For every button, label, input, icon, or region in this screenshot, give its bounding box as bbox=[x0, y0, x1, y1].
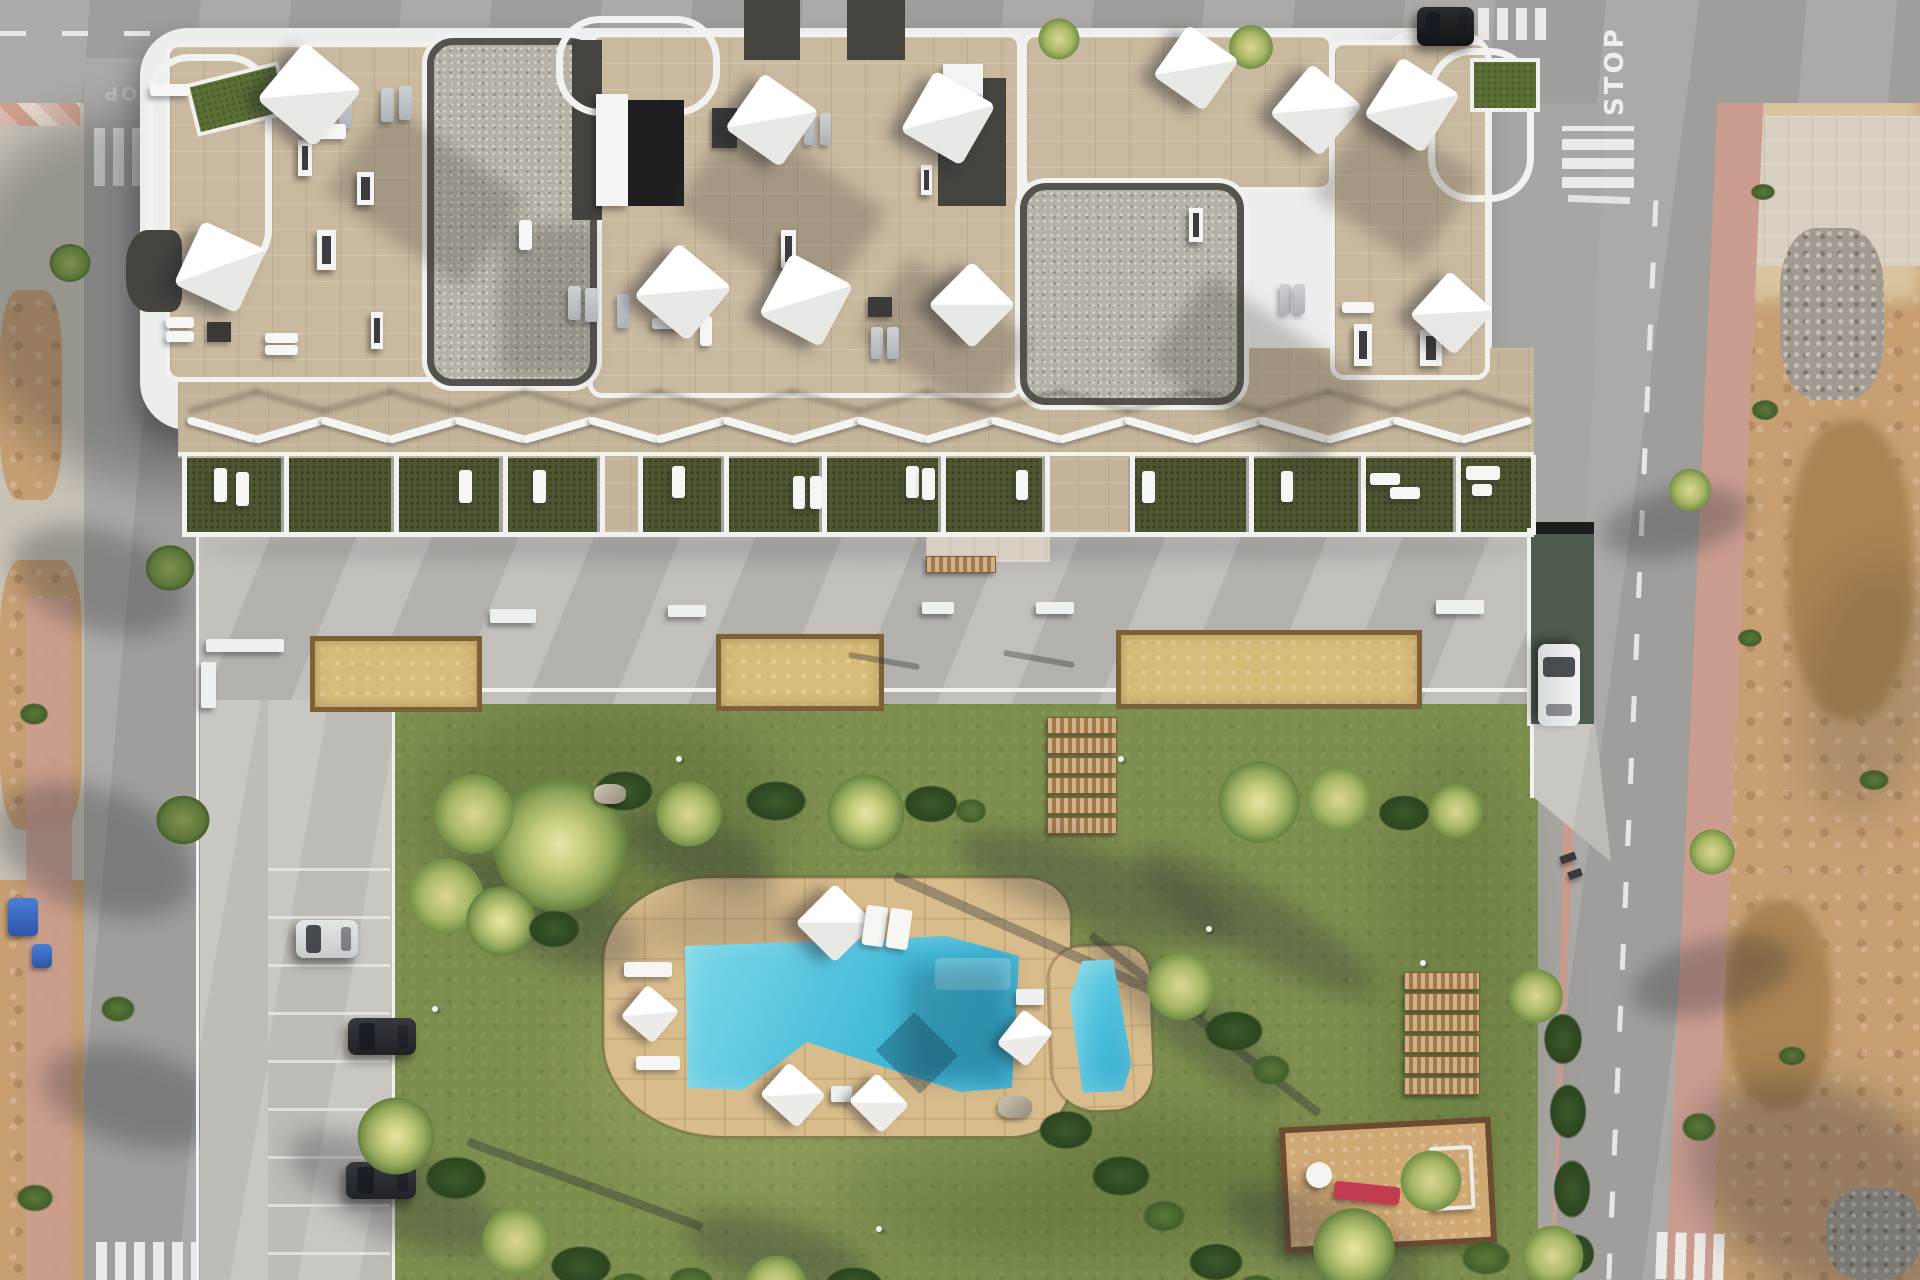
wood-bench bbox=[1404, 972, 1480, 990]
roof-palm bbox=[1030, 10, 1088, 68]
roof-lounger bbox=[265, 345, 298, 355]
weed bbox=[1745, 180, 1781, 204]
roof-lounger bbox=[265, 333, 298, 343]
street-tree bbox=[1660, 460, 1720, 520]
parking-line bbox=[268, 1252, 390, 1255]
playground-parasol bbox=[1306, 1162, 1332, 1188]
balcony-box bbox=[847, 0, 905, 60]
plaza-bench bbox=[206, 639, 284, 652]
parking-line bbox=[268, 964, 390, 967]
crosswalk-bottomright bbox=[1655, 1232, 1729, 1280]
street-tree bbox=[1680, 820, 1744, 884]
terrace-path bbox=[1048, 458, 1128, 534]
garden-bollard bbox=[432, 1006, 438, 1012]
terrace-lounger bbox=[672, 466, 685, 498]
weed bbox=[1772, 1042, 1812, 1070]
garden-step bbox=[1047, 797, 1117, 814]
garden-step bbox=[1047, 717, 1117, 734]
terrace-lounger bbox=[236, 472, 249, 506]
parking-line bbox=[268, 868, 390, 871]
parking-line bbox=[268, 1060, 390, 1063]
wood-bench bbox=[1404, 1077, 1480, 1095]
garden-bollard bbox=[876, 1226, 882, 1232]
garden-step bbox=[1047, 757, 1117, 774]
roof-lounger bbox=[399, 86, 412, 120]
trash-bin bbox=[8, 898, 38, 936]
garden-bollard bbox=[1420, 960, 1426, 966]
palm-tree bbox=[733, 1243, 819, 1280]
parked-car bbox=[296, 920, 358, 958]
terrace-lounger bbox=[906, 466, 919, 498]
roof-lounger bbox=[617, 294, 630, 328]
terrace-garden bbox=[397, 458, 499, 534]
terrace-wall bbox=[503, 455, 508, 535]
terrace-wall bbox=[284, 455, 289, 535]
crosswalk-right-road bbox=[1562, 126, 1634, 188]
terrace-wall bbox=[600, 455, 605, 535]
garden-step bbox=[1047, 777, 1117, 794]
roof-shaft bbox=[628, 100, 684, 206]
roof-lounger bbox=[568, 286, 581, 320]
roof-chimney bbox=[1189, 208, 1203, 242]
palm-tree bbox=[1510, 1213, 1596, 1280]
garden-bollard bbox=[676, 756, 682, 762]
roof-chimney bbox=[371, 312, 383, 349]
plaza-bench bbox=[1036, 602, 1074, 614]
terrace-wall bbox=[1249, 455, 1254, 535]
plaza-curb bbox=[196, 534, 199, 1280]
terrace-beam bbox=[178, 452, 1534, 456]
weed bbox=[1852, 765, 1896, 795]
roof-chimney bbox=[357, 172, 374, 205]
roof-lounger bbox=[871, 327, 883, 359]
terrace-wall bbox=[638, 455, 643, 535]
roof-lounger bbox=[381, 88, 394, 122]
crosswalk-topright bbox=[1478, 8, 1552, 40]
roof-lounger bbox=[519, 220, 532, 250]
terrace-garden bbox=[505, 458, 597, 534]
roof-lounger bbox=[1294, 284, 1305, 314]
bush bbox=[1133, 1193, 1195, 1239]
weed bbox=[1732, 625, 1768, 651]
weed bbox=[1745, 395, 1785, 425]
roof-lounger bbox=[150, 84, 190, 96]
rock bbox=[594, 784, 626, 804]
rock bbox=[998, 1096, 1032, 1118]
garden-step bbox=[1047, 737, 1117, 754]
plaza-step-wood bbox=[926, 556, 996, 573]
terrace-lounger bbox=[533, 470, 546, 503]
street-tree bbox=[148, 788, 218, 852]
trash-bin bbox=[32, 944, 52, 968]
roof-chimney bbox=[921, 165, 932, 195]
bush bbox=[518, 903, 590, 955]
parking-line bbox=[268, 1012, 390, 1015]
roof-lounger bbox=[585, 288, 598, 322]
roof-duct bbox=[596, 94, 628, 206]
terrace-garden bbox=[287, 458, 391, 534]
garden-bollard bbox=[1206, 926, 1212, 932]
palm-tree bbox=[1418, 773, 1494, 849]
weed bbox=[13, 698, 55, 730]
palm-tree bbox=[1388, 1138, 1474, 1224]
plaza-bench bbox=[1436, 600, 1484, 614]
pool-lounger bbox=[636, 1056, 680, 1070]
rubble-pile bbox=[1780, 228, 1884, 400]
terrace-bottom-wall bbox=[182, 532, 1534, 537]
terrace-wall bbox=[724, 455, 729, 535]
terrace-garden bbox=[185, 458, 281, 534]
terrace-sofa bbox=[1390, 487, 1420, 499]
terrace-lounger bbox=[1016, 470, 1028, 500]
terrace-lounger bbox=[1281, 471, 1293, 502]
hedge bbox=[1542, 1073, 1594, 1150]
aerial-residential-render: STOP STOP bbox=[0, 0, 1920, 1280]
roof-lounger bbox=[166, 331, 194, 342]
wood-bench bbox=[1404, 1035, 1480, 1053]
terrace-lounger bbox=[214, 468, 227, 502]
roof-lounger bbox=[887, 327, 899, 359]
roof-table bbox=[868, 297, 892, 317]
plaza-bench bbox=[201, 662, 216, 708]
terrace-wall bbox=[941, 455, 946, 535]
terrace-wall bbox=[1456, 455, 1461, 535]
roof-chimney bbox=[298, 140, 312, 176]
parked-car bbox=[348, 1018, 416, 1055]
stop-road-marking: STOP bbox=[1600, 52, 1628, 116]
roof-lounger bbox=[166, 317, 194, 328]
roof-lounger bbox=[820, 113, 831, 145]
weed bbox=[8, 1178, 62, 1218]
terrace-wall bbox=[1045, 455, 1050, 535]
terrace-garden bbox=[727, 458, 819, 534]
car-top-road bbox=[1417, 7, 1474, 46]
terrace-wall bbox=[182, 455, 187, 535]
balcony-box bbox=[744, 0, 800, 60]
wood-bench bbox=[1404, 1056, 1480, 1074]
bush bbox=[1243, 1048, 1299, 1092]
car-on-ramp bbox=[1538, 644, 1580, 726]
building-shadow-plaza bbox=[196, 534, 1536, 560]
street-tree bbox=[1674, 1106, 1724, 1148]
weed bbox=[93, 990, 143, 1028]
garden-step bbox=[1047, 817, 1117, 834]
ramp-wall bbox=[1527, 528, 1531, 726]
terrace-path bbox=[601, 458, 639, 534]
wood-bench bbox=[1404, 1014, 1480, 1032]
terrace-wall bbox=[1130, 455, 1135, 535]
terrace-wall bbox=[1361, 455, 1366, 535]
crosswalk-left-bottom bbox=[96, 1242, 198, 1280]
terrace-sofa bbox=[1466, 466, 1500, 480]
plaza-bench bbox=[922, 602, 954, 614]
terrace-wall bbox=[1531, 455, 1536, 535]
street-tree bbox=[43, 238, 97, 288]
terrace-sofa bbox=[1370, 473, 1400, 485]
bush bbox=[733, 773, 819, 829]
roof-lounger bbox=[1280, 284, 1291, 314]
garage-slot bbox=[1531, 522, 1594, 534]
petanque-court bbox=[716, 634, 884, 711]
terrace-wall bbox=[822, 455, 827, 535]
roof-chimney bbox=[317, 230, 336, 270]
pool-lounger bbox=[624, 962, 672, 977]
roof-lounger bbox=[1342, 302, 1374, 313]
terrace-lounger bbox=[810, 476, 822, 509]
terrace-lounger bbox=[922, 468, 935, 500]
terrace-lounger bbox=[793, 476, 805, 509]
plaza-bench bbox=[668, 605, 706, 617]
garage-ramp-west bbox=[126, 230, 182, 312]
roof-chimney bbox=[1354, 324, 1372, 366]
parking-line bbox=[268, 916, 390, 919]
palm-tree bbox=[1498, 958, 1574, 1034]
street-tree bbox=[138, 538, 202, 598]
petanque-court bbox=[310, 636, 482, 712]
palm-tree bbox=[1293, 753, 1385, 845]
bush bbox=[948, 793, 994, 829]
terrace-lounger bbox=[459, 470, 472, 503]
roof-table bbox=[207, 322, 231, 342]
garden-bollard bbox=[1118, 756, 1124, 762]
roof-garden bbox=[1474, 62, 1536, 108]
petanque-court bbox=[1116, 630, 1422, 709]
pool-table bbox=[831, 1086, 852, 1102]
terrace-sofa bbox=[1472, 484, 1492, 496]
terrace-lounger bbox=[1142, 471, 1155, 503]
walkway-column bbox=[200, 700, 268, 1280]
bush bbox=[1028, 1103, 1104, 1157]
plaza-bench bbox=[490, 609, 536, 623]
terrace-wall bbox=[394, 455, 399, 535]
pool-table bbox=[1016, 989, 1044, 1005]
palm-tree bbox=[643, 768, 735, 860]
wood-bench bbox=[1404, 993, 1480, 1011]
